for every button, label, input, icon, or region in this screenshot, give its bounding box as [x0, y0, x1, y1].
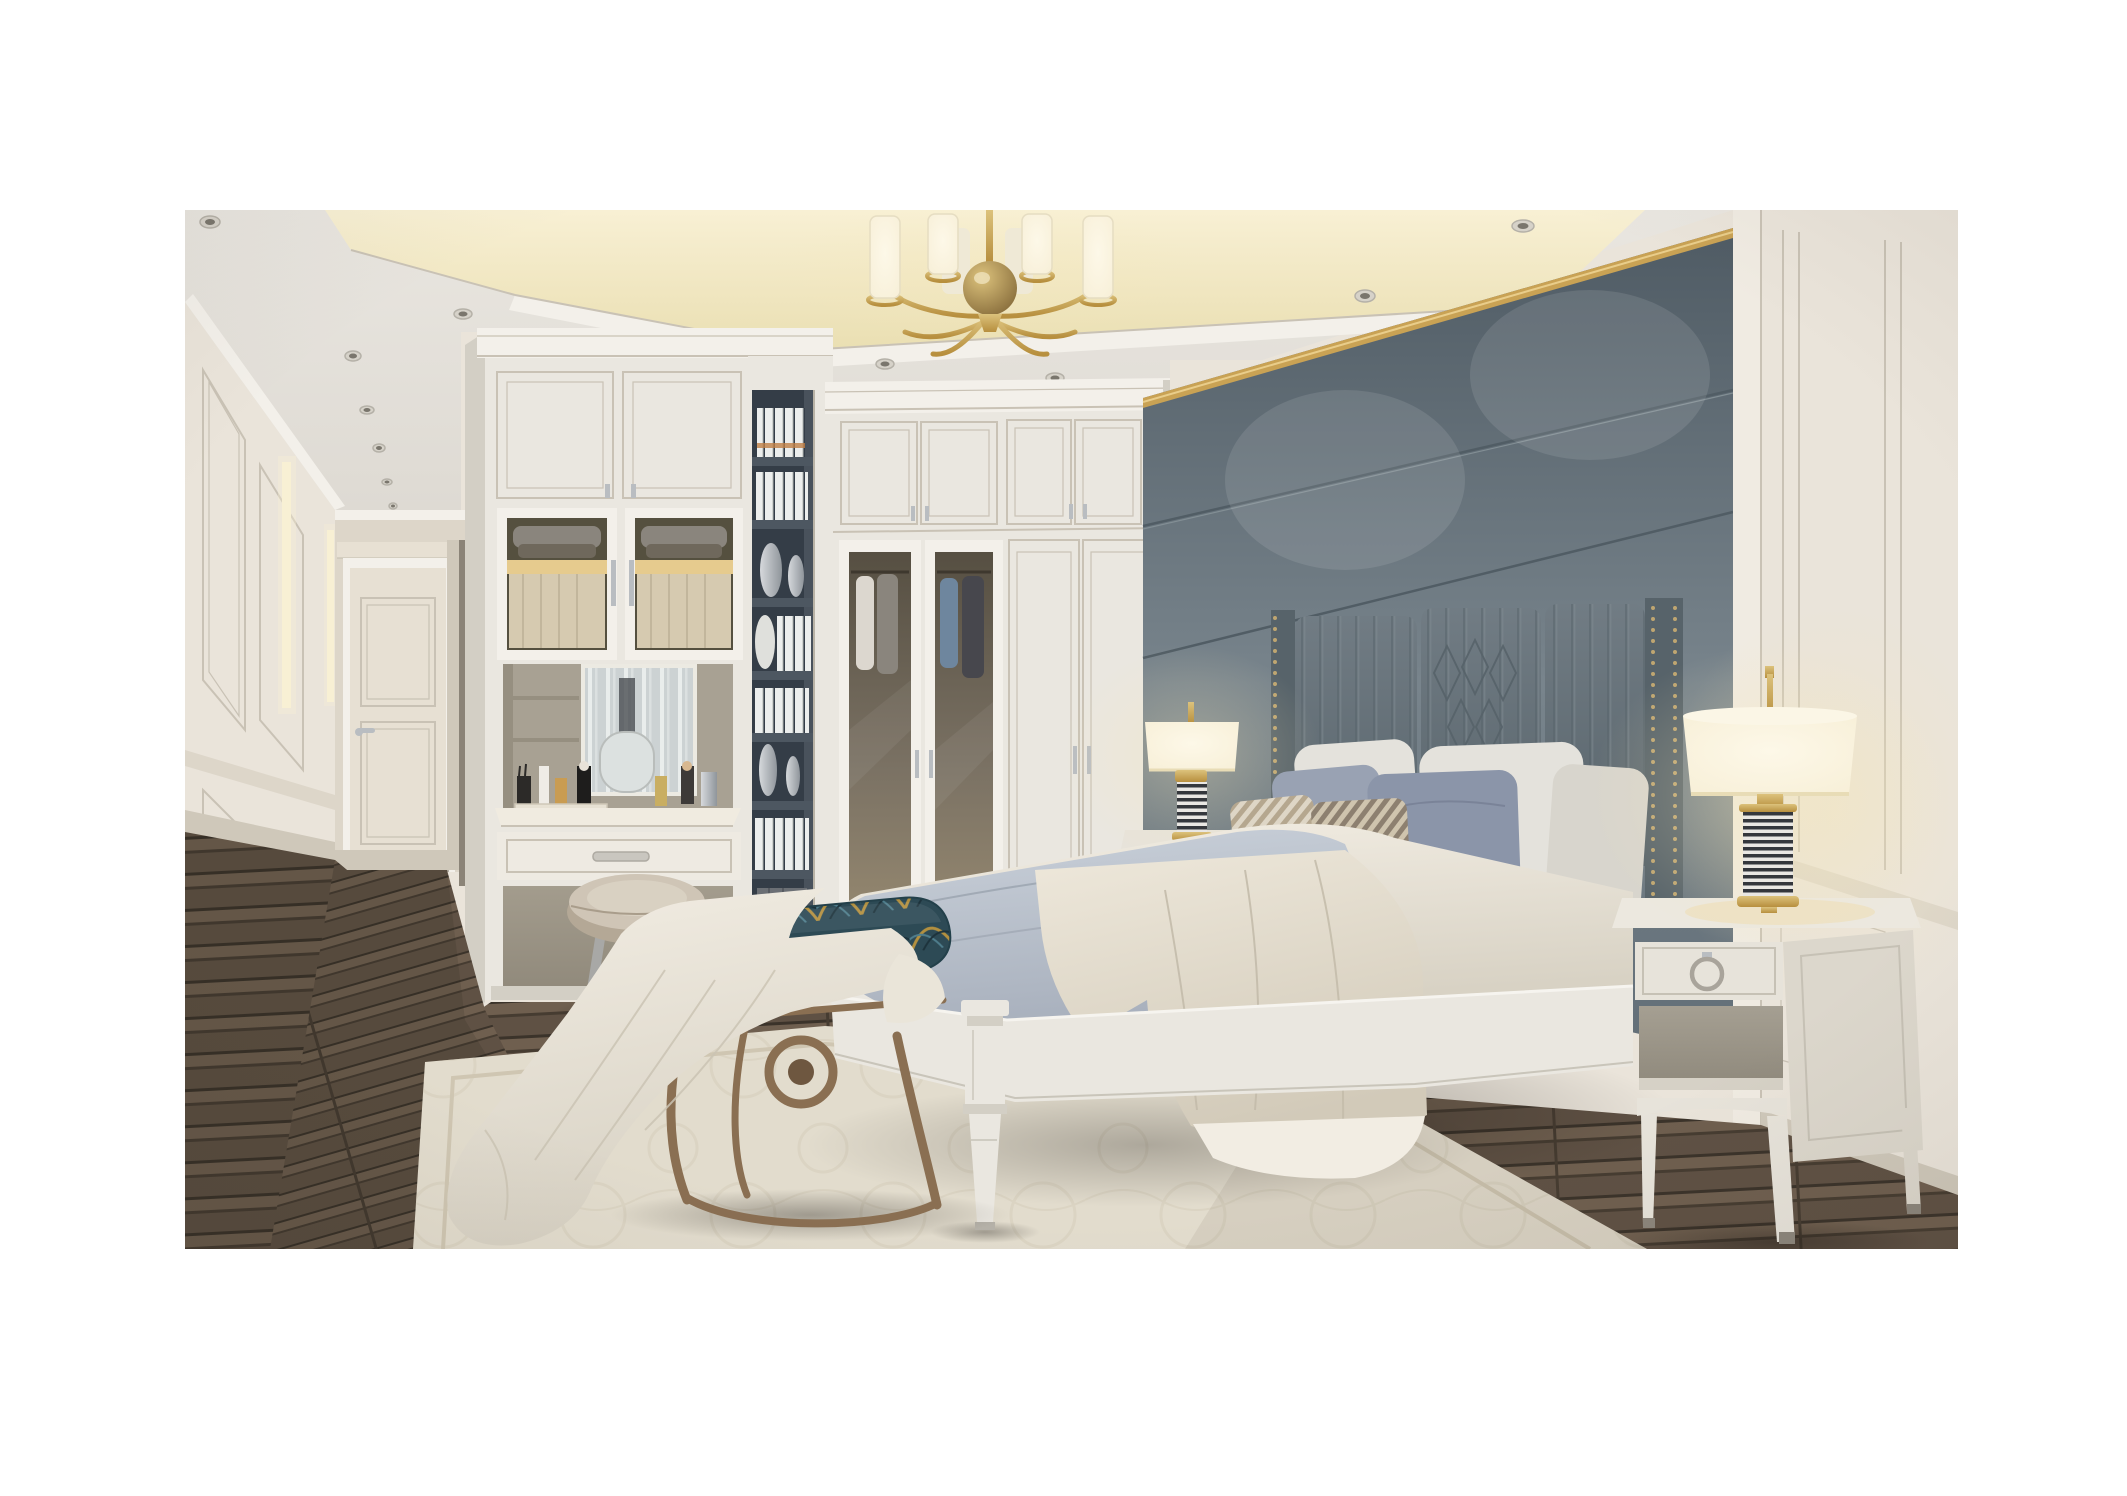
bedroom-scene — [185, 210, 1958, 1249]
bedroom-photo — [185, 210, 1958, 1249]
vignette — [185, 210, 1958, 1249]
page — [0, 0, 2127, 1496]
